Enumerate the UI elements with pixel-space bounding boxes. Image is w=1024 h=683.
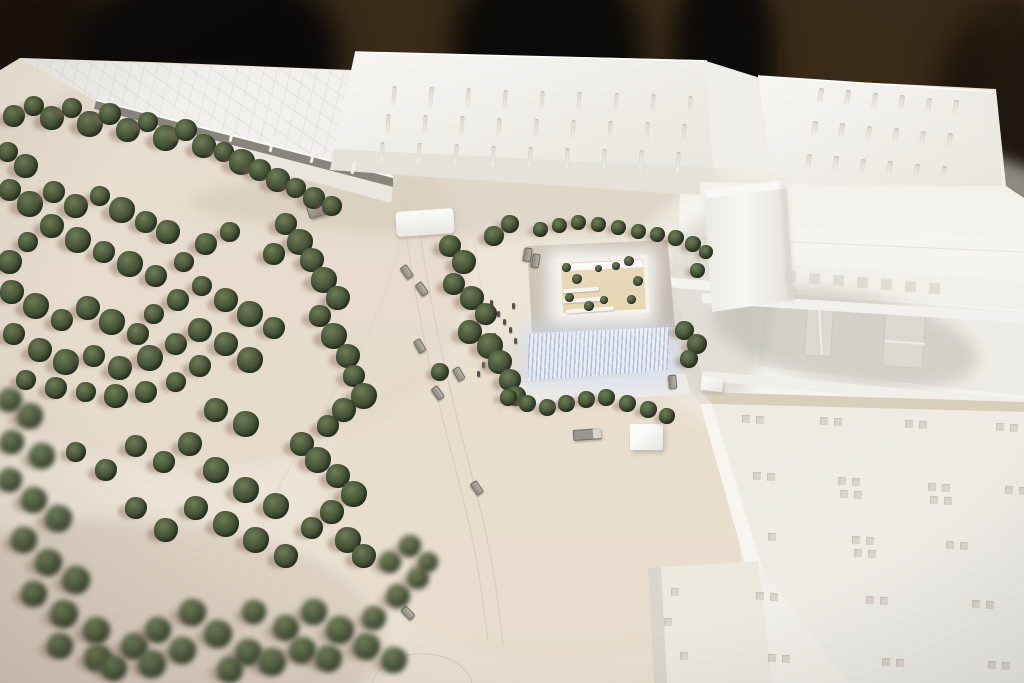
- model-tree: [488, 350, 512, 374]
- terrace-panel: [929, 283, 941, 295]
- model-tree: [301, 599, 327, 625]
- model-tree: [533, 222, 548, 237]
- terrace-panel: [809, 273, 821, 285]
- model-tree: [99, 309, 125, 335]
- model-tree: [351, 383, 377, 409]
- model-tree: [0, 388, 22, 412]
- model-tree: [65, 227, 91, 253]
- center-slab-skylights: [428, 87, 433, 107]
- model-tree: [341, 481, 367, 507]
- model-tree: [83, 617, 110, 644]
- model-tree: [192, 134, 216, 158]
- wedge-column: [310, 150, 316, 163]
- model-tree: [166, 372, 186, 392]
- courtyard-tree: [612, 262, 620, 270]
- model-tree: [317, 415, 339, 437]
- model-tree: [175, 119, 197, 141]
- roof-skylight: [756, 416, 764, 424]
- model-tree: [335, 527, 361, 553]
- model-tree: [145, 265, 167, 287]
- model-car: [415, 281, 429, 297]
- model-tree: [93, 241, 115, 263]
- model-tree: [326, 464, 350, 488]
- model-car: [669, 375, 678, 390]
- model-tree: [50, 600, 78, 628]
- model-tree: [64, 194, 88, 218]
- model-tree: [475, 303, 497, 325]
- model-tree: [127, 323, 149, 345]
- model-tree: [101, 655, 127, 681]
- model-tree: [153, 451, 175, 473]
- model-person: [499, 348, 502, 354]
- right-slab-skylights: [913, 163, 920, 179]
- model-tree: [237, 347, 263, 373]
- model-tree: [184, 496, 208, 520]
- model-tree: [174, 252, 194, 272]
- roof-skylight: [996, 423, 1004, 431]
- model-tree: [23, 293, 49, 319]
- roof-skylight: [972, 600, 980, 608]
- model-tree: [309, 305, 331, 327]
- model-tree: [680, 350, 698, 368]
- roof-skylight: [868, 550, 876, 558]
- center-slab-skylights: [601, 149, 606, 169]
- model-car: [400, 605, 415, 620]
- model-tree: [189, 355, 211, 377]
- model-tree: [144, 304, 164, 324]
- model-person: [497, 311, 500, 317]
- model-tree: [687, 334, 707, 354]
- roof-skylight: [671, 588, 679, 596]
- model-car: [470, 480, 484, 496]
- right-slab-skylights: [892, 128, 899, 144]
- model-tree: [76, 296, 100, 320]
- model-tree: [188, 318, 212, 342]
- model-tree: [431, 363, 449, 381]
- model-tree: [214, 332, 238, 356]
- model-tree: [321, 323, 347, 349]
- model-tree: [237, 301, 263, 327]
- terrace-panel: [881, 279, 893, 291]
- courtyard-tree: [562, 263, 571, 272]
- model-tree: [18, 232, 38, 252]
- model-tree: [578, 391, 595, 408]
- courtyard-bench: [563, 287, 599, 294]
- center-slab-skylights: [385, 114, 390, 134]
- model-tree: [138, 650, 166, 678]
- right-slab-skylights: [838, 123, 845, 139]
- model-tree: [460, 286, 484, 310]
- model-tree: [300, 248, 324, 272]
- roof-skylight: [742, 415, 750, 423]
- model-tree: [179, 599, 206, 626]
- center-slab-skylights: [465, 88, 470, 108]
- roof-skylight: [919, 421, 927, 429]
- roof-skylight: [928, 483, 936, 491]
- center-slab-skylights: [613, 93, 618, 113]
- model-tree: [17, 403, 43, 429]
- center-slab-skylights: [391, 86, 396, 106]
- model-tree: [386, 584, 410, 608]
- model-tree: [99, 103, 121, 125]
- roof-skylight: [944, 497, 952, 505]
- center-slab-skylights: [570, 120, 575, 140]
- model-tree: [353, 633, 380, 660]
- model-tree: [290, 432, 314, 456]
- roof-skylight: [1002, 662, 1010, 670]
- model-tree: [320, 500, 344, 524]
- roof-skylight: [946, 541, 954, 549]
- model-tree: [477, 333, 503, 359]
- center-slab-skylights: [539, 91, 544, 111]
- courtyard-bench: [566, 306, 614, 313]
- roof-skylight: [854, 491, 862, 499]
- roof-skylight: [905, 420, 913, 428]
- model-person: [493, 333, 496, 339]
- roof-skylight: [820, 417, 828, 425]
- model-tree: [90, 186, 110, 206]
- model-person: [503, 319, 506, 325]
- model-tree: [29, 443, 55, 469]
- right-slab-skylights: [844, 90, 851, 106]
- model-tree: [407, 567, 429, 589]
- model-tree: [452, 250, 476, 274]
- model-tree: [235, 639, 262, 666]
- model-tree: [379, 551, 401, 573]
- right-slab-skylights: [940, 166, 947, 182]
- model-tree: [0, 430, 24, 454]
- model-tree: [332, 398, 356, 422]
- center-slab-skylights: [681, 123, 686, 143]
- model-tree: [685, 236, 701, 252]
- model-person: [505, 357, 508, 363]
- model-tree: [51, 309, 73, 331]
- model-tree: [43, 181, 65, 203]
- roof-skylight: [988, 661, 996, 669]
- right-slab-skylights: [886, 161, 893, 177]
- center-slab-skylights: [379, 142, 384, 162]
- model-person: [514, 338, 517, 344]
- roof-skylight: [767, 473, 775, 481]
- model-tree: [24, 96, 44, 116]
- model-tree: [3, 105, 25, 127]
- model-tree: [47, 633, 73, 659]
- model-tree: [214, 142, 234, 162]
- center-slab-skylights: [490, 145, 495, 165]
- right-slab-skylights: [871, 93, 878, 109]
- model-tree: [243, 527, 269, 553]
- model-tree: [0, 280, 24, 304]
- architectural-model-photo: Photograph of a white architectural scal…: [0, 0, 1024, 683]
- roof-skylight: [930, 496, 938, 504]
- model-tree: [631, 224, 646, 239]
- model-tree: [220, 222, 240, 242]
- model-tree: [274, 544, 298, 568]
- model-tree: [217, 657, 243, 683]
- model-tree: [154, 518, 178, 542]
- roof-skylight: [838, 477, 846, 485]
- right-slab-skylights: [811, 121, 818, 137]
- center-slab-skylights: [607, 121, 612, 141]
- model-car: [400, 264, 414, 280]
- model-tree: [21, 581, 47, 607]
- model-tree: [121, 633, 148, 660]
- model-tree: [500, 389, 517, 406]
- model-tree: [242, 600, 266, 624]
- model-tree: [439, 235, 461, 257]
- model-tree: [343, 365, 365, 387]
- model-person: [509, 327, 512, 333]
- model-tree: [675, 321, 694, 340]
- model-tree: [233, 477, 259, 503]
- right-slab-skylights: [817, 88, 824, 104]
- roof-skylight: [768, 654, 776, 662]
- roof-skylight: [1010, 424, 1018, 432]
- model-tree: [263, 317, 285, 339]
- model-tree: [499, 369, 521, 391]
- model-tree: [116, 118, 140, 142]
- model-person: [482, 362, 485, 368]
- model-tree: [249, 159, 271, 181]
- courtyard-tree: [633, 276, 643, 286]
- model-tree: [125, 435, 147, 457]
- model-tree: [381, 647, 407, 673]
- roof-skylight: [770, 593, 778, 601]
- model-tree: [233, 411, 259, 437]
- model-tree: [156, 220, 180, 244]
- courtyard-bench: [563, 296, 607, 303]
- model-car: [452, 366, 465, 382]
- wedge-column: [188, 118, 194, 131]
- roof-skylight: [680, 652, 688, 660]
- model-objects-layer: [0, 0, 1024, 683]
- roof-skylight: [1019, 487, 1024, 495]
- model-tree: [229, 149, 255, 175]
- courtyard-tree: [572, 274, 582, 284]
- model-tree: [40, 106, 64, 130]
- right-slab-skylights: [859, 159, 866, 175]
- model-tree: [135, 211, 157, 233]
- roof-skylight: [986, 601, 994, 609]
- model-tree: [362, 606, 386, 630]
- model-tree: [135, 381, 157, 403]
- model-tree: [28, 338, 52, 362]
- roof-skylight: [840, 490, 848, 498]
- wedge-column: [269, 139, 275, 152]
- model-tree: [108, 356, 132, 380]
- model-tree: [195, 233, 217, 255]
- model-tree: [62, 566, 90, 594]
- model-tree: [506, 386, 526, 406]
- model-tree: [192, 276, 212, 296]
- roof-skylight: [756, 592, 764, 600]
- model-tree: [266, 168, 290, 192]
- model-tree: [0, 142, 18, 162]
- model-tree: [214, 288, 238, 312]
- model-tree: [125, 497, 147, 519]
- right-slab-skylights: [832, 156, 839, 172]
- model-tree: [501, 215, 519, 233]
- model-tree: [668, 230, 684, 246]
- model-tree: [273, 615, 299, 641]
- model-tree: [16, 370, 36, 390]
- terrace-panel: [833, 275, 845, 287]
- model-tree: [619, 395, 636, 412]
- center-slab-skylights: [459, 116, 464, 136]
- model-tree: [418, 552, 438, 572]
- right-slab-skylights: [946, 133, 953, 149]
- center-slab-skylights: [533, 119, 538, 139]
- model-tree: [45, 377, 67, 399]
- model-tree: [305, 447, 331, 473]
- model-tree: [153, 125, 179, 151]
- model-tree: [275, 213, 297, 235]
- model-tree: [76, 382, 96, 402]
- model-tree: [558, 395, 575, 412]
- right-slab-skylights: [805, 154, 812, 170]
- model-tree: [659, 408, 675, 424]
- model-tree: [336, 344, 360, 368]
- roof-skylight: [1005, 486, 1013, 494]
- right-slab-skylights: [898, 95, 905, 111]
- model-tree: [598, 389, 615, 406]
- model-tree: [699, 245, 713, 259]
- model-tree: [303, 187, 325, 209]
- model-tree: [399, 535, 421, 557]
- model-tree: [3, 323, 25, 345]
- roof-skylight: [852, 536, 860, 544]
- roof-skylight: [854, 549, 862, 557]
- roof-skylight: [782, 655, 790, 663]
- model-tree: [35, 549, 62, 576]
- terrace-panel: [785, 271, 797, 283]
- roof-skylight: [753, 472, 761, 480]
- model-tree: [458, 320, 482, 344]
- roof-skylight: [880, 597, 888, 605]
- model-tree: [315, 645, 342, 672]
- model-tree: [66, 442, 86, 462]
- model-tree: [690, 263, 705, 278]
- model-car: [431, 385, 445, 401]
- center-slab-skylights: [638, 150, 643, 170]
- model-tree: [84, 644, 112, 672]
- model-tree: [204, 620, 232, 648]
- model-tree: [301, 517, 323, 539]
- model-tree: [95, 459, 117, 481]
- model-tree: [311, 267, 337, 293]
- model-tree: [326, 286, 350, 310]
- model-tree: [53, 349, 79, 375]
- roof-skylight: [768, 533, 776, 541]
- model-person: [487, 343, 490, 349]
- model-tree: [109, 197, 135, 223]
- right-slab-skylights: [952, 100, 959, 116]
- center-slab-skylights: [502, 89, 507, 109]
- model-tree: [322, 196, 342, 216]
- model-tree: [104, 384, 128, 408]
- right-slab-skylights: [919, 130, 926, 146]
- model-tree: [40, 214, 64, 238]
- model-tree: [611, 220, 626, 235]
- roof-skylight: [664, 618, 672, 626]
- model-tree: [286, 178, 306, 198]
- roof-skylight: [960, 542, 968, 550]
- right-slab-skylights: [925, 97, 932, 113]
- model-person: [490, 300, 493, 306]
- center-slab-skylights: [576, 92, 581, 112]
- roof-skylight: [896, 659, 904, 667]
- roof-skylight: [834, 418, 842, 426]
- roof-skylight: [882, 658, 890, 666]
- model-tree: [204, 398, 228, 422]
- wedge-column: [147, 107, 153, 120]
- model-tree: [117, 251, 143, 277]
- model-tree: [77, 111, 103, 137]
- model-tree: [21, 487, 47, 513]
- courtyard-tree: [627, 295, 636, 304]
- model-tree: [62, 98, 82, 118]
- center-slab-skylights: [675, 151, 680, 171]
- model-car: [531, 253, 541, 268]
- model-tree: [519, 395, 536, 412]
- wedge-column: [350, 160, 356, 173]
- model-tree: [263, 493, 289, 519]
- model-tree: [213, 511, 239, 537]
- model-tree: [289, 637, 316, 664]
- courtyard-tree: [595, 265, 602, 272]
- model-tree: [83, 345, 105, 367]
- terrace-panel: [857, 277, 869, 289]
- model-person: [512, 303, 515, 309]
- roof-skylight: [866, 596, 874, 604]
- model-tree: [571, 215, 586, 230]
- model-tree: [14, 154, 38, 178]
- model-tree: [258, 648, 286, 676]
- model-tree: [591, 217, 606, 232]
- model-person: [477, 371, 480, 377]
- model-tree: [326, 616, 354, 644]
- model-tree: [263, 243, 285, 265]
- center-slab-skylights: [422, 115, 427, 135]
- model-tree: [640, 401, 657, 418]
- center-slab-skylights: [644, 122, 649, 142]
- model-tree: [137, 345, 163, 371]
- center-slab-skylights: [416, 143, 421, 163]
- center-slab-skylights: [650, 94, 655, 114]
- model-tree: [11, 527, 37, 553]
- center-slab-skylights: [527, 147, 532, 167]
- model-tree: [0, 179, 21, 201]
- center-slab-skylights: [453, 144, 458, 164]
- center-slab-skylights: [564, 148, 569, 168]
- model-tree: [169, 637, 196, 664]
- model-tree: [17, 191, 43, 217]
- model-tree: [650, 227, 665, 242]
- model-tree: [145, 617, 171, 643]
- roof-skylight: [852, 478, 860, 486]
- model-tree: [484, 226, 504, 246]
- model-tree: [203, 457, 229, 483]
- model-tree: [539, 399, 556, 416]
- model-tree: [0, 250, 22, 274]
- model-tree: [443, 273, 465, 295]
- center-slab-skylights: [496, 117, 501, 137]
- terrace-panel: [905, 281, 917, 293]
- courtyard-tree: [624, 256, 634, 266]
- model-tree: [45, 505, 72, 532]
- model-tree: [167, 289, 189, 311]
- roof-skylight: [942, 484, 950, 492]
